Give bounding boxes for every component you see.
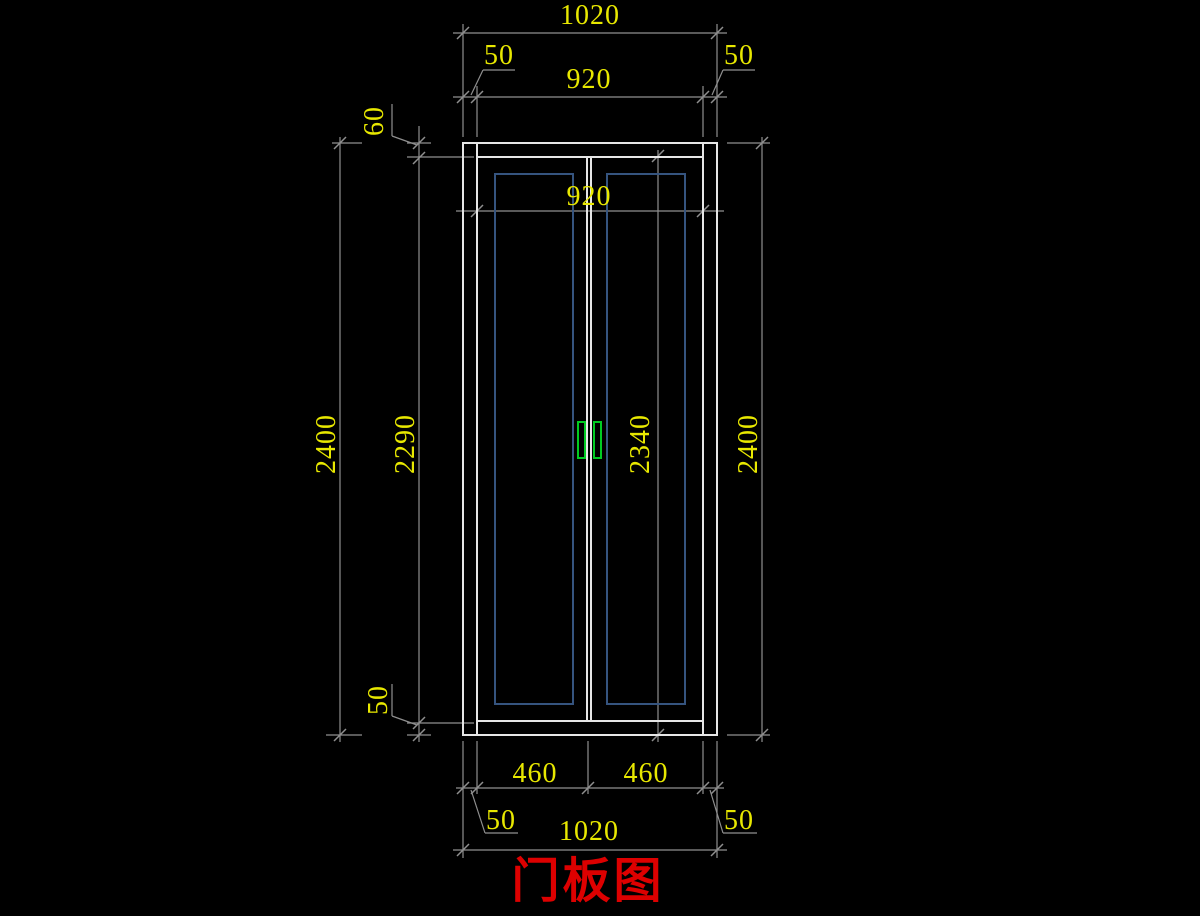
- dim-label-door-inner-width: 920: [567, 183, 612, 211]
- left-door-handle: [577, 421, 586, 459]
- dim-label-top-rail-height: 60: [361, 106, 389, 136]
- door-left-stile-line: [476, 144, 478, 734]
- door-leaf-gap-left-line: [586, 158, 588, 720]
- dim-label-top-left-stile: 50: [484, 42, 514, 70]
- right-door-handle: [593, 421, 602, 459]
- dim-label-top-inner-width: 920: [567, 66, 612, 94]
- dim-label-bottom-left-stile: 50: [486, 807, 516, 835]
- dim-label-top-right-stile: 50: [724, 42, 754, 70]
- cad-drawing-canvas: 1020 50 920 50 60 920 2400 2290 2340 240…: [0, 0, 1200, 916]
- door-bottom-rail-line: [478, 720, 703, 722]
- dim-label-right-leaf-width: 460: [624, 760, 669, 788]
- dim-label-leaf-height: 2340: [627, 414, 655, 474]
- dim-label-bottom-right-stile: 50: [724, 807, 754, 835]
- dim-label-overall-height-right: 2400: [735, 414, 763, 474]
- door-right-stile-line: [702, 144, 704, 734]
- dim-label-left-leaf-width: 460: [513, 760, 558, 788]
- door-leaf-gap-right-line: [590, 158, 592, 720]
- dim-label-top-overall-width: 1020: [560, 2, 620, 30]
- drawing-title: 门板图: [511, 858, 664, 906]
- left-door-panel-inset: [494, 173, 574, 705]
- dim-label-overall-height-left: 2400: [313, 414, 341, 474]
- dim-label-panel-region-height: 2290: [392, 414, 420, 474]
- dim-label-bottom-rail-height: 50: [365, 685, 393, 715]
- dim-label-bottom-overall-width: 1020: [559, 818, 619, 846]
